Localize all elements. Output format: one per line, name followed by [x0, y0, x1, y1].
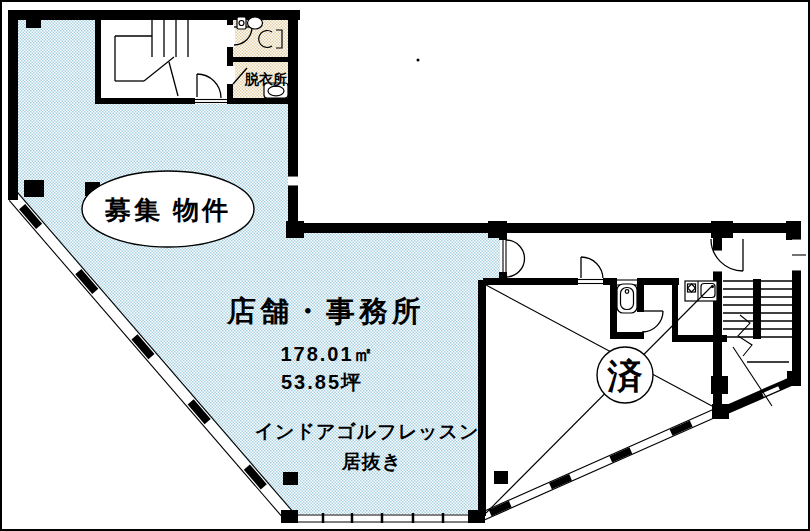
area-sqm-label: 178.01㎡: [280, 343, 375, 365]
unit-type-label: 店舗・事務所: [226, 295, 425, 327]
previous-use-label: インドアゴルフレッスン: [255, 421, 480, 442]
pillar: [494, 471, 508, 484]
area-tsubo-label: 53.85坪: [281, 371, 363, 393]
window-left-wing: [288, 176, 298, 186]
floor-plan-svg: 済 募集 物件 店舗・事務所 178.01㎡ 53.85坪 インドアゴルフレッス…: [0, 0, 810, 531]
toilet-icon: [237, 17, 263, 29]
dressing-room-label: 脱衣所: [244, 71, 287, 87]
kitchen-unit: [685, 281, 717, 301]
pillar: [283, 472, 298, 485]
condition-label: 居抜き: [341, 451, 402, 472]
floor-plan-page: 済 募集 物件 店舗・事務所 178.01㎡ 53.85坪 インドアゴルフレッス…: [0, 0, 810, 531]
vacancy-badge: 募集 物件: [82, 171, 254, 247]
vacancy-badge-label: 募集 物件: [104, 195, 231, 225]
artifact-dot: [417, 59, 420, 62]
occupied-status-circle: 済: [597, 347, 653, 403]
pillar: [26, 18, 41, 28]
bottom-window-wall: [285, 513, 483, 523]
bathtub-icon: [617, 284, 637, 313]
occupied-status-label: 済: [607, 356, 643, 395]
